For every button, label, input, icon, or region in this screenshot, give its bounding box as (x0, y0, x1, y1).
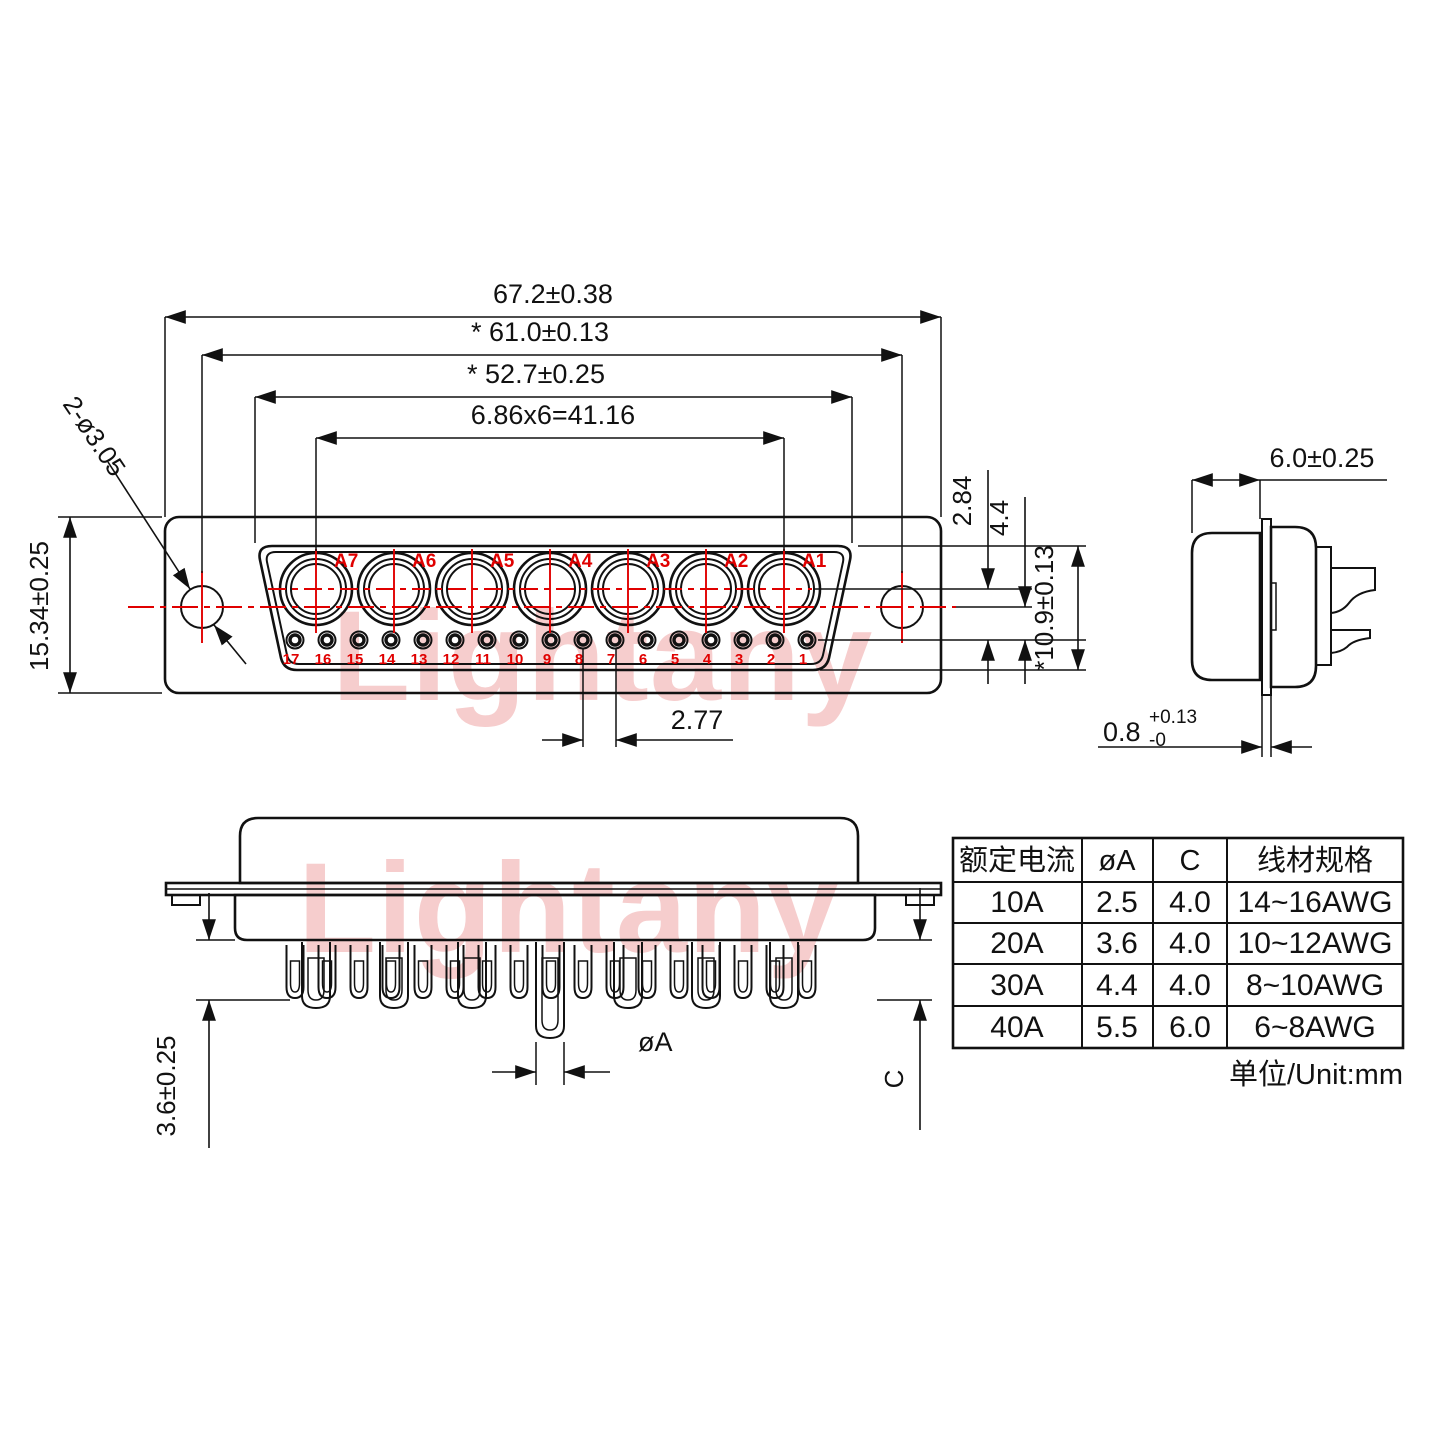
hole-number-14: 14 (379, 651, 396, 668)
contact-label-a3: A3 (646, 551, 670, 572)
hole-number-8: 8 (575, 651, 583, 668)
hole-number-12: 12 (443, 651, 460, 668)
hole-number-11: 11 (475, 651, 491, 668)
spec-cell: 40A (990, 1011, 1043, 1044)
dim-shell-width: * 52.7±0.25 (467, 359, 605, 389)
spec-row-30a: 30A 4.4 4.0 8~10AWG (990, 969, 1384, 1002)
engineering-drawing-page: Lightany Lightany (0, 0, 1440, 1440)
side-rear-housing (1271, 527, 1316, 687)
hole-number-16: 16 (315, 651, 332, 668)
contact-label-a4: A4 (568, 551, 593, 572)
spec-header-current: 额定电流 (959, 844, 1075, 877)
connector-drawing-svg: Lightany Lightany (0, 0, 1440, 1440)
spec-cell: 4.4 (1096, 969, 1138, 1002)
contact-label-a1: A1 (802, 551, 827, 572)
spec-cell: 6~8AWG (1254, 1011, 1375, 1044)
contact-label-a5: A5 (490, 551, 515, 572)
hole-number-4: 4 (703, 651, 712, 668)
side-back-shell (1192, 533, 1260, 680)
spec-cell: 2.5 (1096, 886, 1138, 919)
dim-row-offset-2: 4.4 (984, 500, 1014, 536)
side-housing-step (1316, 547, 1331, 665)
dim-mount-hole-callout: 2-ø3.05 (57, 391, 132, 482)
spec-cell: 20A (990, 927, 1043, 960)
side-terminal-lower (1331, 630, 1370, 653)
bottom-flange-ear-left (172, 895, 200, 905)
spec-cell: 3.6 (1096, 927, 1138, 960)
spec-row-40a: 40A 5.5 6.0 6~8AWG (990, 1011, 1375, 1044)
dim-overall-height: 15.34±0.25 (24, 541, 54, 671)
spec-unit-note: 单位/Unit:mm (1229, 1058, 1403, 1091)
spec-cell: 14~16AWG (1238, 886, 1393, 919)
contact-label-a7: A7 (334, 551, 358, 572)
dim-pin-length: 3.6±0.25 (151, 1035, 181, 1136)
hole-number-13: 13 (411, 651, 428, 668)
hole-number-17: 17 (283, 651, 300, 668)
spec-cell: 5.5 (1096, 1011, 1138, 1044)
dim-cup-depth: C (879, 1070, 909, 1089)
side-dimension-lines (1098, 480, 1387, 747)
spec-cell: 10A (990, 886, 1043, 919)
dim-row-offset-1: 2.84 (947, 476, 977, 527)
hole-number-15: 15 (347, 651, 364, 668)
spec-header-dia: øA (1098, 845, 1136, 877)
spec-header-wire: 线材规格 (1257, 844, 1373, 877)
spec-cell: 10~12AWG (1238, 927, 1393, 960)
spec-cell: 4.0 (1169, 927, 1211, 960)
side-flange-plate (1262, 519, 1271, 695)
hole-number-1: 1 (799, 651, 807, 668)
dim-flange-tol-plus: +0.13 (1149, 707, 1197, 728)
spec-cell: 6.0 (1169, 1011, 1211, 1044)
dim-hole-pitch: 2.77 (671, 705, 724, 735)
dim-contact-pitch: 6.86x6=41.16 (471, 400, 635, 430)
dim-flange-thickness: 0.8 (1103, 717, 1141, 747)
dim-mount-pitch: * 61.0±0.13 (471, 317, 609, 347)
contact-label-a2: A2 (724, 551, 748, 572)
side-terminal-upper (1331, 568, 1375, 613)
hole-number-9: 9 (543, 651, 551, 668)
spec-cell: 4.0 (1169, 886, 1211, 919)
hole-number-2: 2 (767, 651, 775, 668)
spec-row-10a: 10A 2.5 4.0 14~16AWG (990, 886, 1392, 919)
hole-number-5: 5 (671, 651, 679, 668)
spec-cell: 8~10AWG (1246, 969, 1384, 1002)
spec-header-c: C (1180, 845, 1201, 877)
side-view: 6.0±0.25 0.8 +0.13 -0 (1098, 443, 1387, 757)
hole-number-10: 10 (507, 651, 524, 668)
dim-flange-tol-minus: -0 (1149, 730, 1166, 751)
hole-number-6: 6 (639, 651, 647, 668)
spec-row-20a: 20A 3.6 4.0 10~12AWG (990, 927, 1392, 960)
spec-table: 额定电流 øA C 线材规格 10A 2.5 4.0 14~16AWG 20A … (953, 838, 1403, 1091)
hole-number-3: 3 (735, 651, 743, 668)
spec-cell: 4.0 (1169, 969, 1211, 1002)
dim-outer-width: 67.2±0.38 (493, 279, 613, 309)
hole-number-7: 7 (607, 651, 615, 668)
dim-shell-depth: 6.0±0.25 (1270, 443, 1375, 473)
dim-pin-diameter: øA (638, 1027, 673, 1057)
dim-shell-height: *10.9±0.13 (1029, 545, 1059, 671)
contact-label-a6: A6 (412, 551, 436, 572)
spec-cell: 30A (990, 969, 1043, 1002)
